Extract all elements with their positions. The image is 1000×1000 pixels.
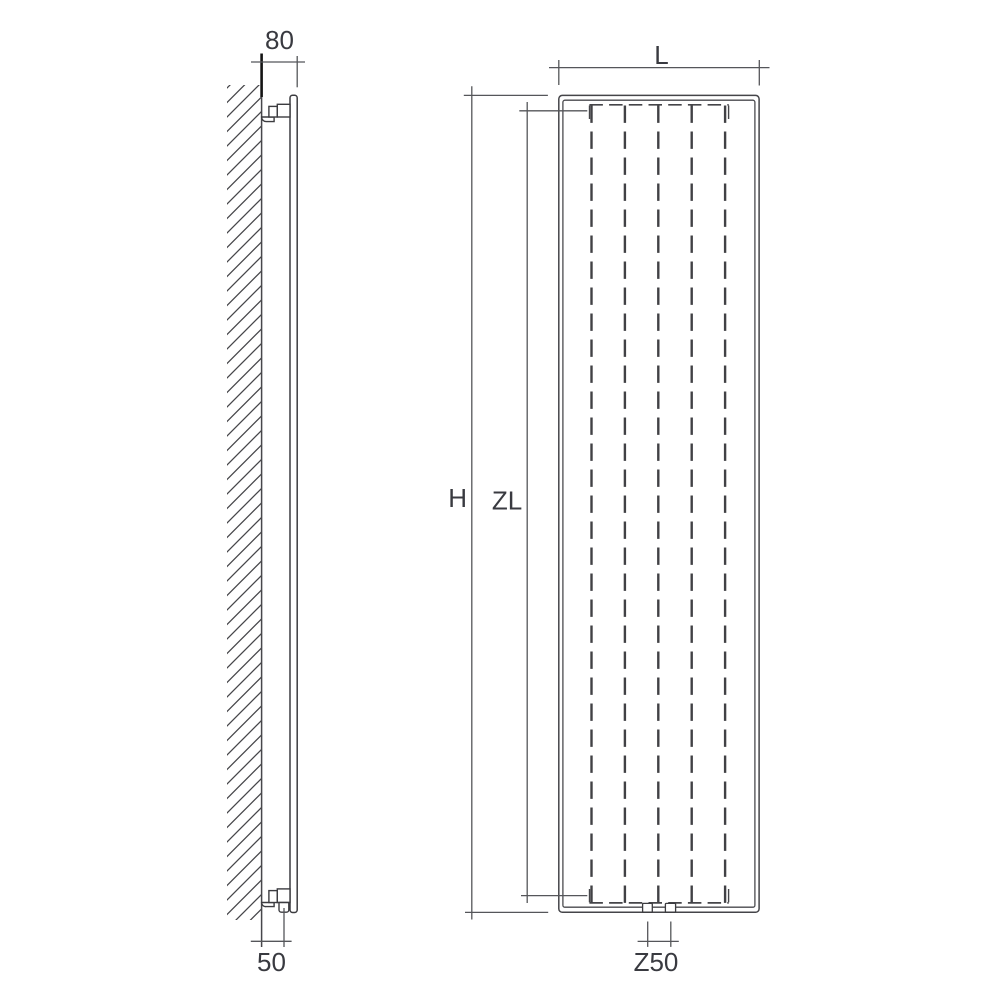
svg-text:L: L: [654, 40, 668, 70]
svg-text:Z50: Z50: [634, 947, 679, 977]
svg-text:H: H: [448, 483, 467, 513]
svg-text:ZL: ZL: [492, 486, 522, 516]
svg-text:80: 80: [265, 25, 294, 55]
svg-text:50: 50: [257, 947, 286, 977]
